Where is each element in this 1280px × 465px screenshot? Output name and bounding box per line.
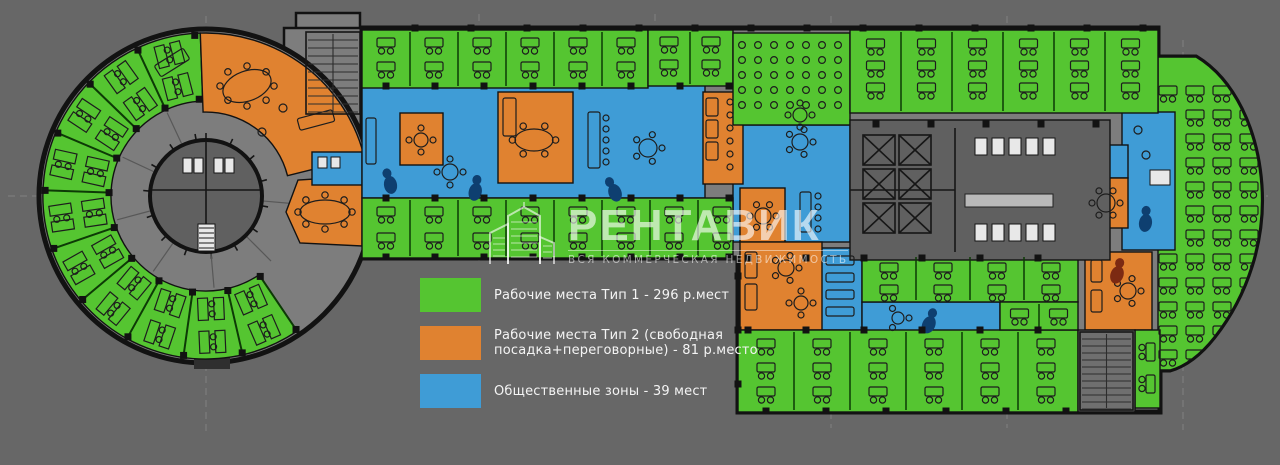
zone-green-top-east	[850, 30, 1158, 113]
legend-swatch-blue	[420, 374, 481, 408]
legend-swatch-orange	[420, 326, 481, 360]
legend-label-type2: Рабочие места Тип 2 (свободная посадка+п…	[494, 328, 774, 358]
zone-green-open-stools	[733, 33, 850, 125]
legend-label-public: Общественные зоны - 39 мест	[494, 384, 707, 399]
legend: Рабочие места Тип 1 - 296 р.мест Рабочие…	[420, 278, 774, 422]
legend-item-type1: Рабочие места Тип 1 - 296 р.мест	[420, 278, 774, 312]
zone-blue-small-east	[1108, 145, 1128, 178]
legend-item-type2: Рабочие места Тип 2 (свободная посадка+п…	[420, 326, 774, 360]
legend-item-public: Общественные зоны - 39 мест	[420, 374, 774, 408]
legend-swatch-green	[420, 278, 481, 312]
legend-label-type1: Рабочие места Тип 1 - 296 р.мест	[494, 288, 729, 303]
zone-green-top-west	[362, 30, 648, 88]
floor-plan-stage: РЕНТАВИК ВСЯ КОММЕРЧЕСКАЯ НЕДВИЖИМОСТЬ Р…	[0, 0, 1280, 465]
zone-green-corner	[1135, 330, 1160, 408]
zone-orange-reception	[498, 92, 573, 183]
zone-connector-meeting-orange	[286, 176, 362, 246]
zone-green-south-east	[738, 330, 1078, 412]
